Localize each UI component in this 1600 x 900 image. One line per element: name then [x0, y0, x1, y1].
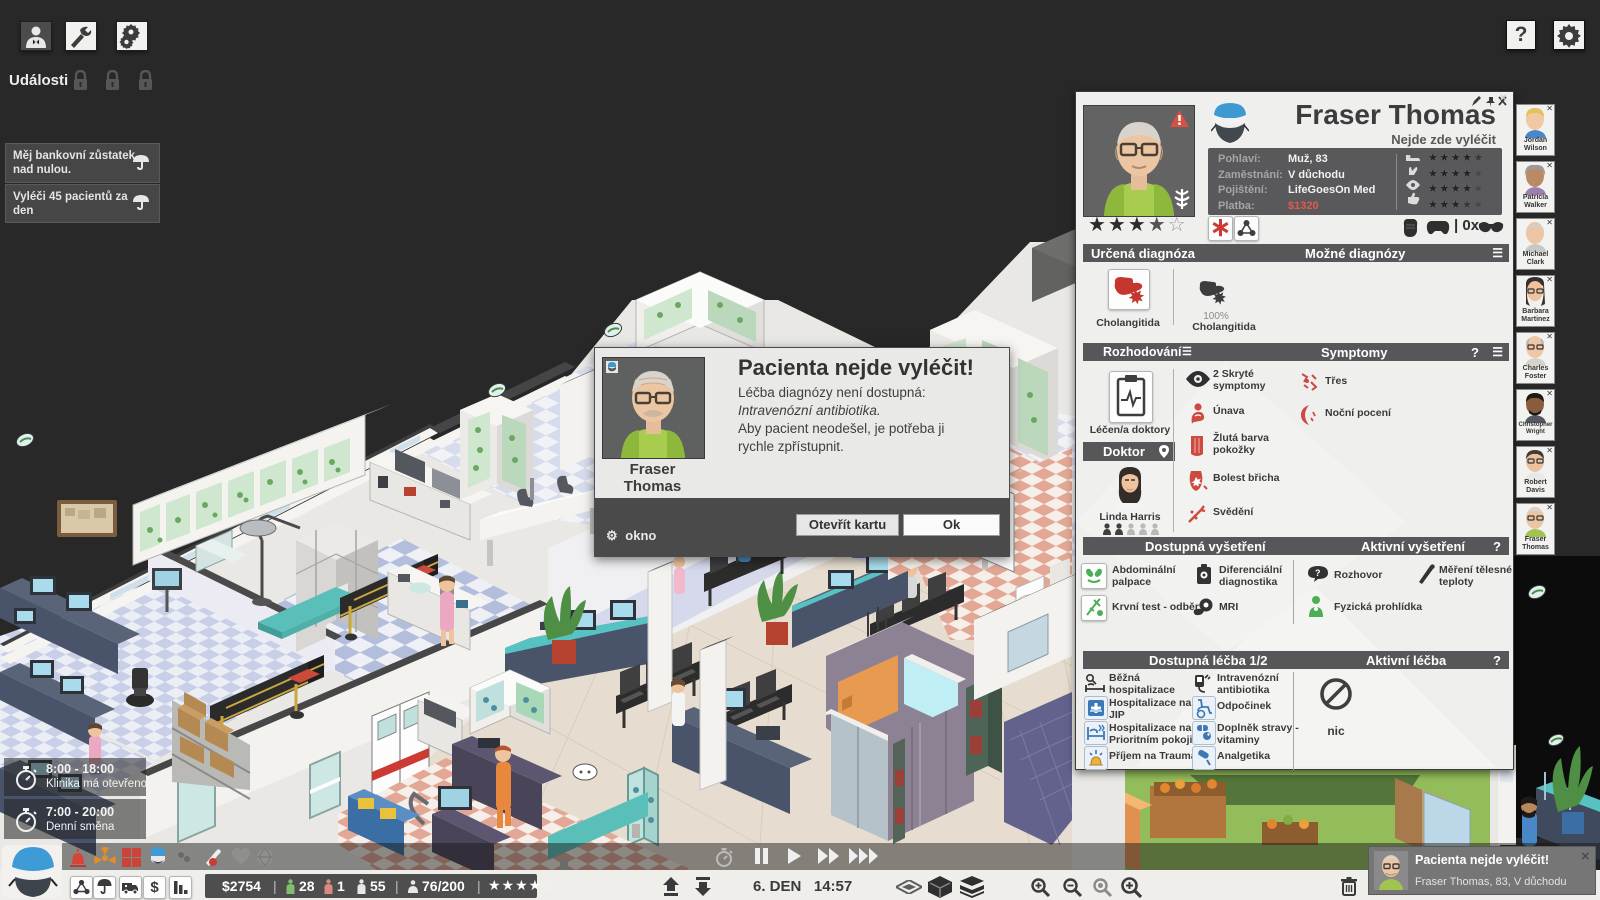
svg-text:?: ?	[1315, 568, 1321, 578]
